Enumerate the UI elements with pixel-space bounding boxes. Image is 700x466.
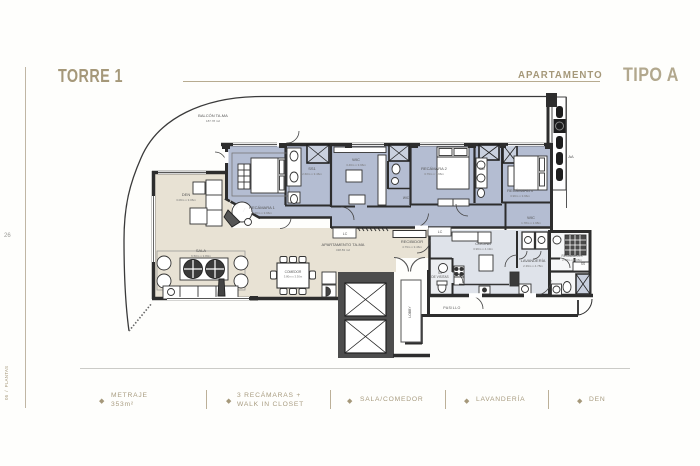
- svg-text:438.83 m2: 438.83 m2: [336, 248, 351, 252]
- svg-text:6.50m x 3.80m: 6.50m x 3.80m: [191, 254, 211, 258]
- svg-text:1.78m x 1.98m: 1.78m x 1.98m: [521, 221, 541, 225]
- svg-text:187.78 m2: 187.78 m2: [206, 119, 221, 123]
- svg-text:LC: LC: [343, 232, 348, 236]
- svg-text:BALCÓN TA-MA: BALCÓN TA-MA: [198, 113, 228, 118]
- svg-text:LC: LC: [438, 230, 443, 234]
- svg-text:COCINA: COCINA: [475, 241, 491, 246]
- svg-text:3.96m x 3.96m: 3.96m x 3.96m: [510, 194, 530, 198]
- svg-text:3.80m x 3.30m: 3.80m x 3.30m: [284, 275, 303, 279]
- svg-text:APARTAMENTO TA-MA: APARTAMENTO TA-MA: [322, 242, 365, 247]
- svg-text:RECÁMARA 1: RECÁMARA 1: [249, 205, 276, 210]
- svg-text:3.96m x 4.19m: 3.96m x 4.19m: [473, 247, 493, 251]
- svg-text:3.96m x 3.96m: 3.96m x 3.96m: [252, 211, 272, 215]
- svg-text:3.06m x 3.06m: 3.06m x 3.06m: [176, 198, 196, 202]
- svg-text:WIC: WIC: [403, 196, 410, 200]
- svg-text:4.79m x 3.46m: 4.79m x 3.46m: [402, 245, 422, 249]
- svg-text:SS1: SS1: [308, 166, 316, 171]
- svg-text:RECÁMARA 2: RECÁMARA 2: [421, 166, 448, 171]
- svg-text:SALA: SALA: [196, 248, 207, 253]
- svg-text:2.39m x 4.78m: 2.39m x 4.78m: [523, 264, 543, 268]
- svg-text:WIC: WIC: [352, 157, 360, 162]
- svg-text:DEN: DEN: [182, 192, 191, 197]
- svg-text:2.60m x 3.46m: 2.60m x 3.46m: [302, 172, 322, 176]
- svg-text:RECÁMARA 3: RECÁMARA 3: [507, 188, 534, 193]
- svg-text:SS2: SS2: [479, 167, 485, 171]
- svg-text:PASILLO: PASILLO: [443, 306, 461, 310]
- svg-text:SS: SS: [581, 262, 585, 266]
- svg-text:DE VISITAS: DE VISITAS: [431, 275, 448, 279]
- svg-text:AA: AA: [568, 154, 574, 159]
- svg-text:WIC: WIC: [527, 215, 535, 220]
- svg-text:3.46m x 3.96m: 3.46m x 3.96m: [346, 163, 366, 167]
- svg-text:RECIBIDOR: RECIBIDOR: [401, 239, 423, 244]
- svg-text:COMEDOR: COMEDOR: [285, 270, 302, 274]
- svg-text:LOBBY: LOBBY: [408, 306, 412, 318]
- svg-text:RECÁMARA S: RECÁMARA S: [562, 254, 583, 258]
- svg-text:LAVANDERÍA: LAVANDERÍA: [521, 258, 546, 263]
- svg-text:3.79m x 3.96m: 3.79m x 3.96m: [424, 172, 444, 176]
- svg-text:2.38m x 2.08m: 2.38m x 2.08m: [562, 258, 582, 262]
